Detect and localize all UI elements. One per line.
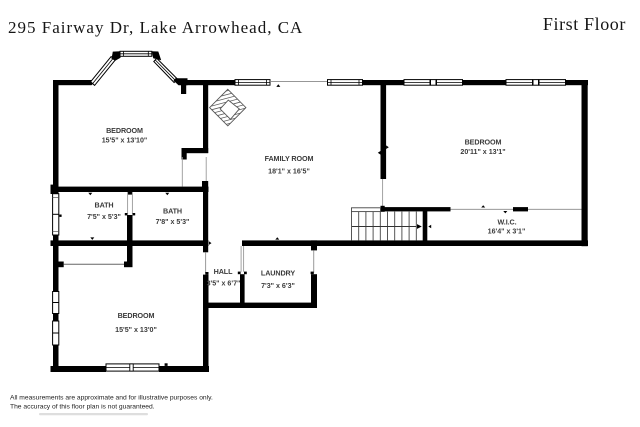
svg-text:18'1" x 16'5": 18'1" x 16'5" [268,168,310,176]
svg-text:BEDROOM: BEDROOM [465,138,502,147]
svg-text:BEDROOM: BEDROOM [106,126,143,135]
svg-text:15'5" x 13'10": 15'5" x 13'10" [102,137,148,145]
svg-text:The accuracy of this floor pla: The accuracy of this floor plan is not g… [10,404,155,411]
svg-text:16'4" x 3'1": 16'4" x 3'1" [488,228,526,236]
svg-text:W.I.C.: W.I.C. [498,218,517,227]
svg-text:BEDROOM: BEDROOM [118,311,155,320]
svg-text:First Floor: First Floor [543,14,626,34]
svg-text:3'5" x 6'7": 3'5" x 6'7" [207,280,241,288]
svg-text:All measurements are approxima: All measurements are approximate and for… [10,395,213,402]
svg-text:7'5" x 5'3": 7'5" x 5'3" [87,213,121,221]
svg-text:15'5" x 13'0": 15'5" x 13'0" [115,326,157,334]
svg-text:295 Fairway Dr, Lake Arrowhead: 295 Fairway Dr, Lake Arrowhead, CA [8,18,303,37]
svg-text:BATH: BATH [163,207,182,216]
svg-text:7'8" x 5'3": 7'8" x 5'3" [156,218,190,226]
svg-text:20'11" x 13'1": 20'11" x 13'1" [460,148,505,156]
svg-text:HALL: HALL [214,267,233,276]
svg-text:7'3" x 6'3": 7'3" x 6'3" [261,282,295,290]
svg-text:FAMILY ROOM: FAMILY ROOM [265,154,314,163]
svg-text:LAUNDRY: LAUNDRY [261,269,295,278]
svg-text:BATH: BATH [94,200,113,209]
